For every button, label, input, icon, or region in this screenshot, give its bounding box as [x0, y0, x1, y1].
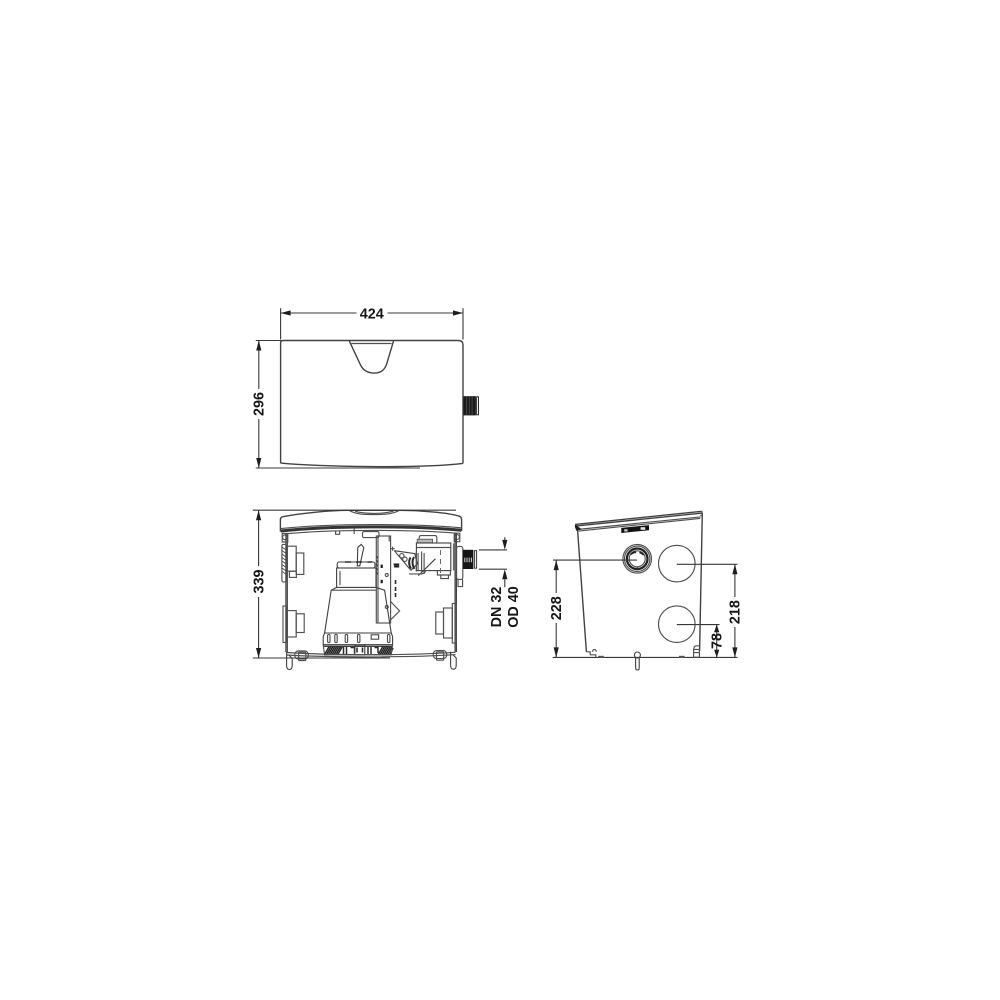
svg-text:OD 40: OD 40 — [506, 586, 522, 628]
svg-text:296: 296 — [252, 392, 268, 416]
svg-text:218: 218 — [728, 600, 744, 624]
svg-text:228: 228 — [549, 596, 565, 620]
svg-text:DN 32: DN 32 — [489, 587, 505, 628]
svg-text:78: 78 — [710, 633, 726, 649]
svg-text:339: 339 — [252, 569, 268, 593]
svg-text:424: 424 — [360, 306, 384, 322]
